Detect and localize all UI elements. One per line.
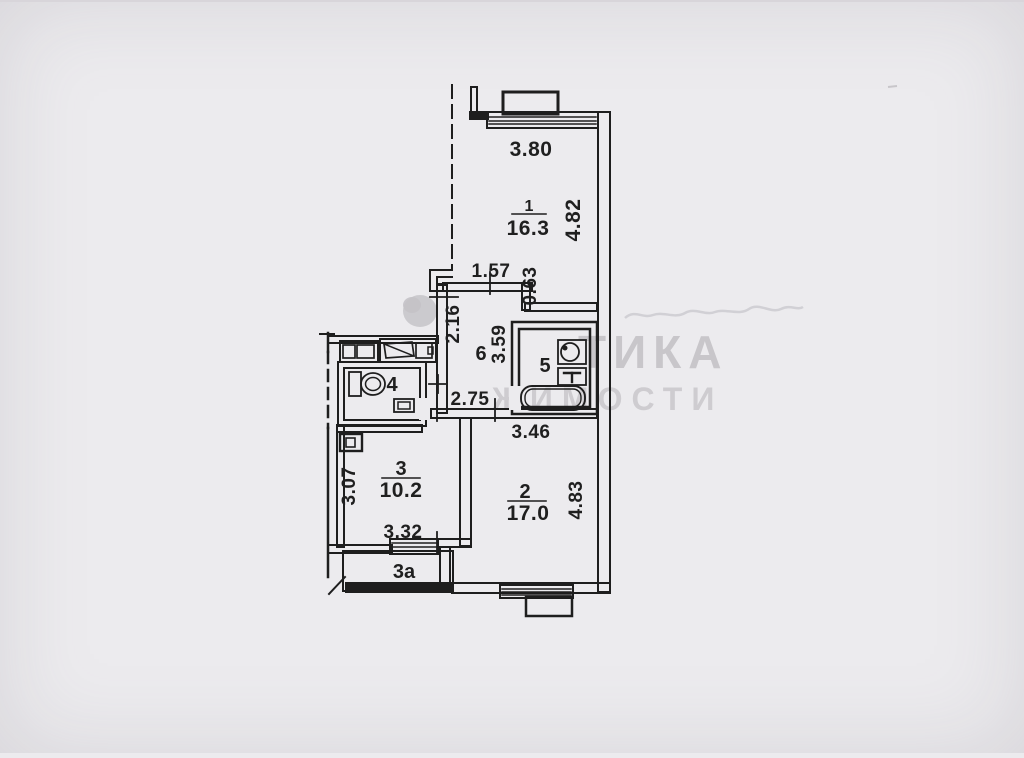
top-left-wall-stub — [471, 87, 477, 114]
watermark-line2: ЖИМОСТИ — [491, 381, 723, 417]
room5-number: 5 — [539, 355, 550, 377]
dim-hall-bottom: 2.75 — [451, 389, 490, 410]
balcony-3a-label: 3а — [393, 561, 416, 583]
room2-area: 17.0 — [507, 502, 550, 525]
room1-bottom-wall — [443, 283, 532, 291]
hall-step-outer — [430, 270, 452, 291]
dim-hall-left: 2.16 — [443, 305, 464, 344]
dim-room2-right: 4.83 — [566, 481, 587, 520]
dim-room3-bottom: 3.32 — [384, 522, 423, 543]
faint-handwriting — [625, 307, 803, 318]
floorplan-svg: ТИКА ЖИМОСТИ — [0, 0, 1024, 753]
faint-speck — [888, 86, 897, 87]
room2-number: 2 — [519, 481, 530, 503]
sink-icon — [394, 399, 414, 412]
balcony-bottom — [526, 597, 572, 616]
plan-walls — [320, 85, 610, 616]
dim-room2-top: 3.46 — [512, 422, 551, 443]
balcony-top — [503, 92, 558, 114]
room1-area: 16.3 — [507, 217, 550, 240]
room6-number: 6 — [475, 343, 486, 365]
dim-room3-left: 3.07 — [339, 467, 360, 506]
dim-offset: 0.63 — [520, 267, 541, 306]
floorplan-scan: ТИКА ЖИМОСТИ — [0, 0, 1024, 753]
plan-labels: 3.80 4.82 1 16.3 1.57 0.63 2.16 6 3.59 4… — [339, 138, 587, 583]
dim-hall-right: 3.59 — [489, 325, 510, 364]
room3-number: 3 — [395, 458, 406, 480]
room3-area: 10.2 — [380, 479, 423, 502]
dim-hall-top: 1.57 — [472, 261, 511, 282]
dim-room1-depth: 4.82 — [562, 199, 585, 242]
room4-number: 4 — [386, 374, 398, 396]
room2-room3-divider — [460, 418, 471, 546]
toilet-icon — [349, 372, 385, 396]
dim-top-width: 3.80 — [510, 138, 553, 161]
watermark-line1: ТИКА — [578, 326, 728, 378]
bathroom-door-gap — [509, 386, 521, 410]
room1-number: 1 — [525, 198, 534, 215]
room2-lower-left-wall — [440, 547, 450, 585]
